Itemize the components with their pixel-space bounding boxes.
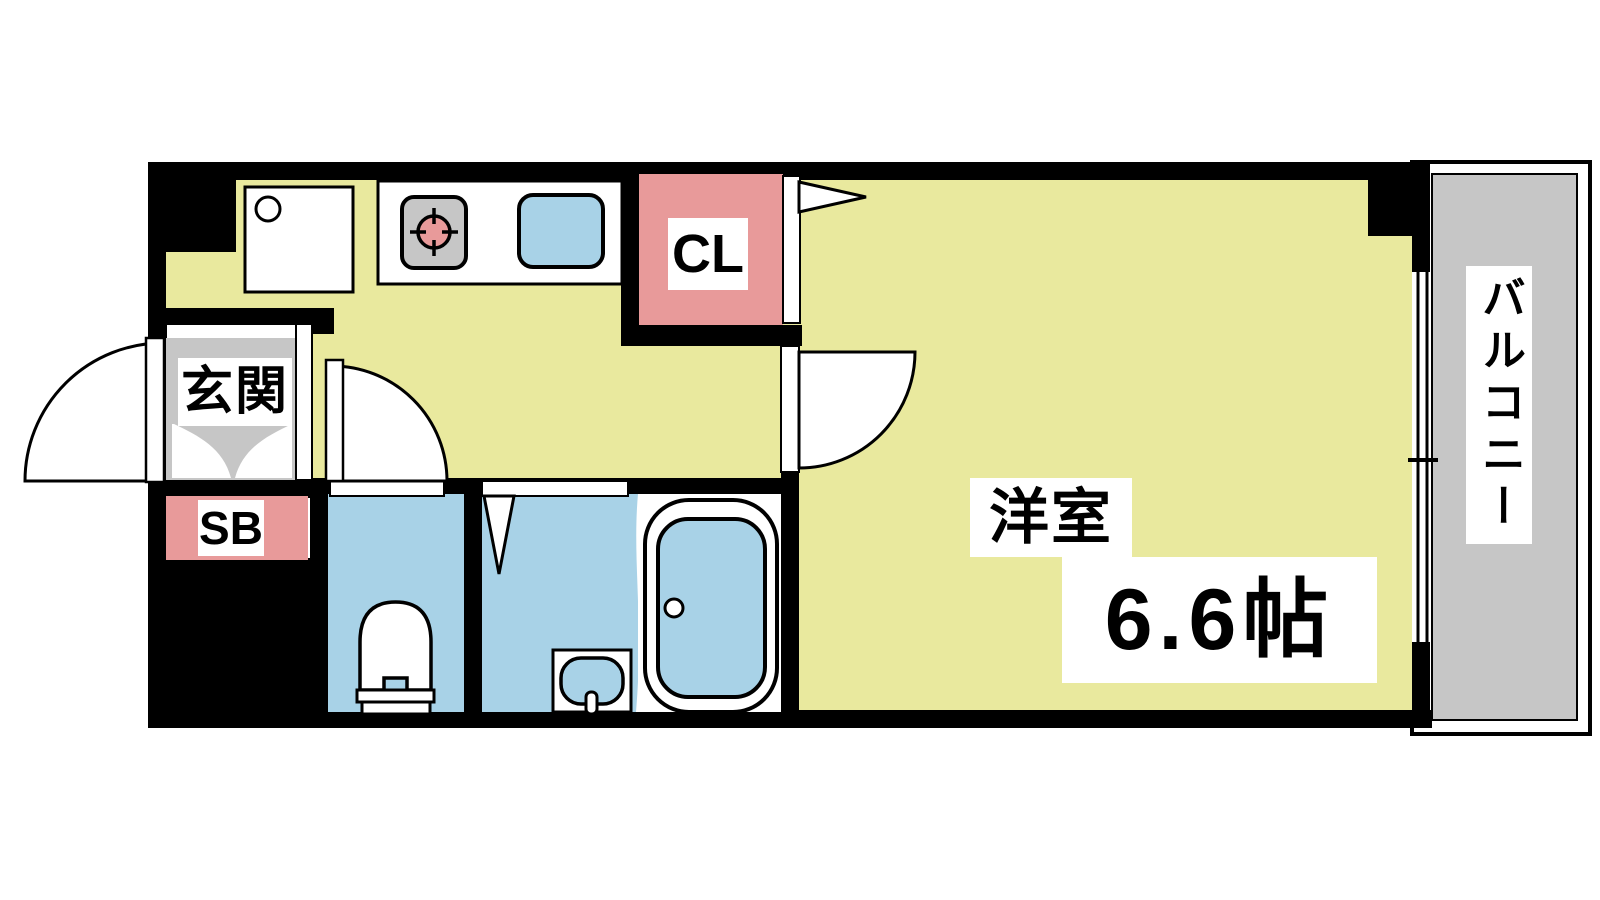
bathroom [482, 481, 781, 714]
closet-label: CL [668, 218, 748, 290]
washbasin-spout [586, 692, 597, 714]
bottom-left-block [148, 558, 326, 712]
bottom-wall [148, 710, 1432, 728]
shoe-box-label: SB [198, 500, 264, 556]
front-door-arc [25, 343, 163, 481]
western-room-label: 洋室 [970, 478, 1132, 557]
kitchen [245, 181, 622, 292]
bathroom-right-wall [781, 466, 799, 712]
toilet-seat-hinge [357, 690, 434, 702]
toilet-icon [357, 602, 434, 714]
toilet-tank [362, 702, 430, 714]
closet-left-wall [621, 174, 639, 346]
floorplan: 玄関 SB CL 洋室 6.6帖 バルコニー [0, 0, 1600, 900]
western-room-size-label: 6.6帖 [1062, 557, 1377, 683]
kitchen-sink-icon [519, 195, 603, 267]
bathtub-icon [645, 500, 777, 712]
right-lower-wall [1412, 642, 1430, 712]
entrance-lintel [166, 324, 306, 340]
closet-bottom-wall [621, 325, 802, 346]
bath-door-opening [482, 481, 628, 496]
entrance-step-edge [296, 324, 312, 480]
washbasin-icon [553, 650, 631, 714]
toilet-bowl [360, 602, 431, 690]
toilet-door-opening [330, 481, 444, 496]
toilet-door-leaf [326, 360, 343, 481]
front-door-swing [25, 338, 164, 482]
front-door-leaf [146, 338, 164, 482]
closet-door [783, 176, 800, 323]
washing-machine-drain [256, 197, 280, 221]
toilet-right-wall [464, 478, 482, 712]
right-stub-narrow [1412, 236, 1430, 272]
floorplan-drawing [0, 0, 1600, 900]
balcony-label: バルコニー [1466, 266, 1532, 544]
gas-stove-icon [402, 197, 466, 268]
right-stub-wall [1368, 162, 1430, 236]
washing-machine-pan-icon [245, 187, 353, 292]
bathtub-drain [665, 599, 683, 617]
toilet-left-wall [310, 478, 328, 712]
entrance-label: 玄関 [178, 358, 292, 426]
room-door-opening [781, 346, 799, 472]
